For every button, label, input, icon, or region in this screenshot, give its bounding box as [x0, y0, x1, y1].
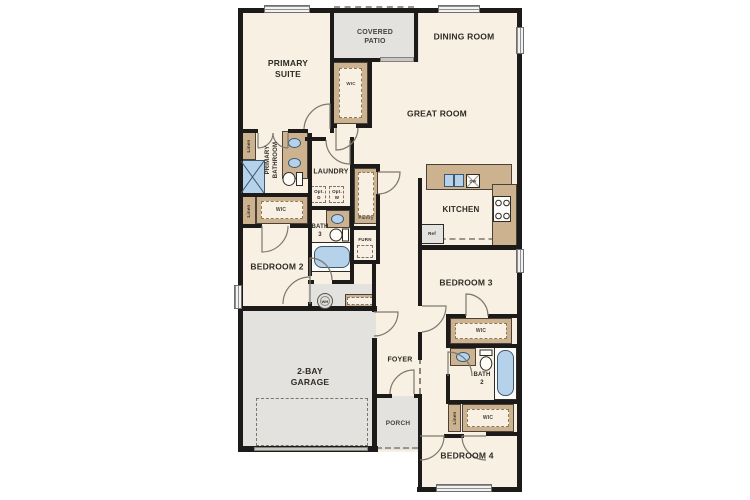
pantry-label: Pantry [358, 215, 373, 221]
water-heater: WH [317, 293, 333, 309]
vanity-sink-icon [288, 138, 301, 148]
opt-dryer-label: Opt. D [314, 189, 324, 201]
great-room-label: GREAT ROOM [407, 108, 467, 119]
wall-segment [305, 137, 326, 141]
linen-label: Linen [246, 140, 252, 153]
wall-segment [488, 314, 519, 318]
window [436, 484, 492, 492]
wall-segment [240, 193, 310, 197]
kitchen-label: KITCHEN [443, 205, 480, 215]
wall-segment [330, 8, 334, 133]
floor-plan-canvas: WH [0, 0, 750, 500]
wall-segment [446, 344, 517, 348]
foyer-label: FOYER [387, 355, 412, 364]
wall-segment [418, 245, 422, 306]
kitchen-sink-icon [444, 174, 454, 187]
linen-label: Linen [246, 205, 252, 218]
wall-segment [332, 280, 350, 284]
bath3-label: BATH 3 [311, 224, 328, 240]
bath3-sink-icon [331, 214, 344, 224]
wic-bedroom2-label: WIC [276, 207, 286, 214]
garage-door [254, 447, 368, 451]
wall-segment [308, 206, 350, 210]
patio-slider-door [380, 57, 414, 62]
bedroom4-label: BEDROOM 4 [440, 450, 493, 461]
wall-segment [308, 302, 312, 310]
vanity-sink-icon [288, 158, 301, 168]
wall-segment [368, 58, 372, 128]
shower [240, 160, 265, 194]
bedroom2-label: BEDROOM 2 [250, 261, 303, 272]
wall-segment [308, 133, 312, 276]
furnace-box [357, 245, 373, 258]
wall-segment [418, 415, 422, 491]
wall-segment [444, 434, 464, 438]
window [264, 5, 310, 13]
wall-segment [418, 395, 422, 415]
wall-segment [356, 124, 372, 128]
wic-primary-inner [339, 68, 362, 118]
window [438, 5, 480, 13]
wall-segment [290, 224, 310, 228]
wall-segment [376, 194, 380, 264]
bath2-label: BATH 2 [473, 372, 490, 388]
pantry-inner [358, 172, 374, 216]
wall-segment [376, 394, 392, 398]
wall-segment [418, 332, 422, 360]
laundry-label: LAUNDRY [313, 167, 348, 176]
porch-edge-dashed [376, 447, 418, 449]
refrigerator-label: Ref [428, 231, 436, 237]
wall-segment [333, 124, 337, 128]
wall-segment [350, 164, 378, 168]
dishwasher-label: DW [469, 178, 476, 183]
wall-segment [414, 394, 422, 398]
water-heater-label: WH [320, 296, 330, 306]
wall-segment [330, 58, 380, 62]
bath2-sink-icon [456, 352, 470, 362]
wall-segment [376, 164, 380, 172]
wall-segment [446, 400, 517, 404]
bedroom3-label: BEDROOM 3 [439, 277, 492, 288]
furnace-label: FURN [358, 237, 371, 243]
garage-label: 2-BAY GARAGE [291, 366, 330, 388]
wall-segment [288, 129, 308, 133]
window [234, 285, 242, 309]
foyer-arch-dashed [419, 358, 421, 394]
wic-bedroom3-label: WIC [476, 328, 486, 335]
linen-label: Linen [452, 412, 458, 425]
bath2-tub [497, 350, 514, 396]
wall-segment [240, 224, 262, 228]
wall-segment [418, 178, 422, 245]
wall-segment [240, 129, 258, 133]
wall-segment [414, 8, 418, 62]
wall-segment [486, 432, 517, 436]
bath3-tub [314, 246, 350, 268]
opt-washer-label: Opt. W [332, 189, 342, 201]
wall-segment [238, 8, 243, 452]
covered-patio-label: COVERED PATIO [357, 28, 393, 46]
wall-segment [308, 280, 314, 284]
wall-segment [372, 264, 376, 310]
window [516, 27, 524, 54]
kitchen-sink-icon [454, 174, 464, 187]
dining-room-label: DINING ROOM [434, 31, 495, 42]
primary-suite-label: PRIMARY SUITE [268, 58, 308, 80]
porch-label: PORCH [386, 420, 410, 428]
wall-segment [350, 226, 378, 230]
garage-apron-dashed [256, 398, 368, 446]
window [516, 249, 524, 273]
wall-segment [446, 314, 450, 348]
primary-bathroom-label: PRIMARY BATHROOM [265, 142, 281, 178]
range [493, 196, 511, 222]
wall-segment [418, 245, 521, 250]
wic-primary-label: WIC [346, 81, 355, 87]
coat-closet-shelf [347, 297, 373, 305]
wic-bedroom4-label: WIC [483, 415, 493, 422]
